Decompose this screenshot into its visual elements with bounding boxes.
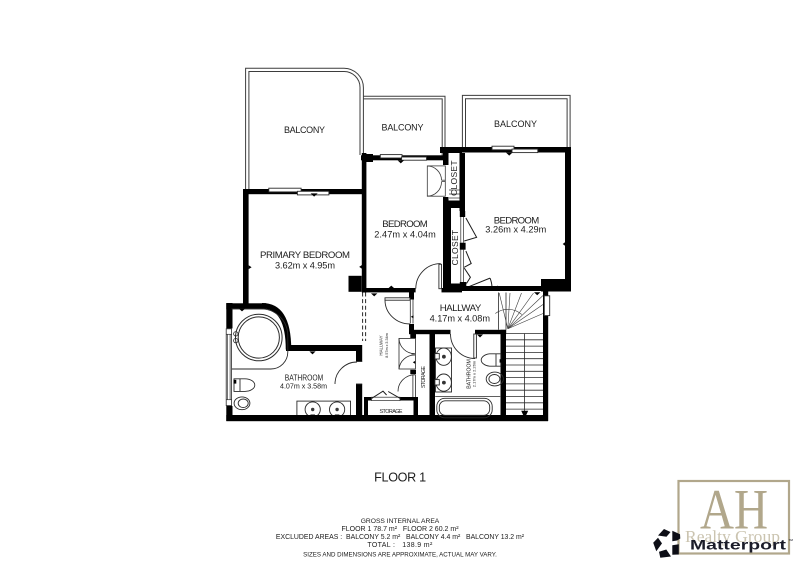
svg-text:Matterport: Matterport bbox=[690, 537, 786, 553]
svg-text:GROSS INTERNAL AREA: GROSS INTERNAL AREA bbox=[361, 518, 440, 525]
svg-text:3.26m x 4.29m: 3.26m x 4.29m bbox=[485, 224, 546, 234]
svg-text:2.47m x 4.04m: 2.47m x 4.04m bbox=[374, 230, 436, 240]
svg-text:STORAGE: STORAGE bbox=[380, 409, 403, 415]
svg-text:FLOOR 1: FLOOR 1 bbox=[374, 471, 426, 485]
svg-text:HALLWAY: HALLWAY bbox=[378, 335, 383, 355]
svg-text:CLOSET: CLOSET bbox=[450, 230, 460, 266]
svg-text:TOTAL : 138.9 m²: TOTAL : 138.9 m² bbox=[367, 542, 433, 549]
svg-text:BALCONY: BALCONY bbox=[284, 125, 325, 135]
svg-text:BEDROOM: BEDROOM bbox=[382, 219, 428, 230]
svg-text:BALCONY: BALCONY bbox=[382, 122, 424, 132]
svg-text:4.17m x 4.08m: 4.17m x 4.08m bbox=[430, 313, 491, 323]
svg-text:2.17m x 2.26m: 2.17m x 2.26m bbox=[472, 360, 477, 387]
svg-text:4.07m x 3.58m: 4.07m x 3.58m bbox=[280, 382, 327, 391]
svg-text:FLOOR 1 78.7 m² FLOOR 2 60.2: FLOOR 1 78.7 m² FLOOR 2 60.2 m² bbox=[341, 526, 459, 533]
svg-text:SIZES AND DIMENSIONS ARE APPRO: SIZES AND DIMENSIONS ARE APPROXIMATE, AC… bbox=[303, 551, 497, 558]
svg-text:BALCONY: BALCONY bbox=[494, 119, 537, 129]
svg-text:STORAGE: STORAGE bbox=[421, 365, 427, 388]
svg-text:CLOSET: CLOSET bbox=[449, 160, 459, 196]
svg-text:™: ™ bbox=[788, 539, 793, 545]
svg-text:8.57m x 3.34m: 8.57m x 3.34m bbox=[385, 333, 389, 357]
svg-text:3.62m x 4.95m: 3.62m x 4.95m bbox=[275, 261, 335, 271]
svg-text:EXCLUDED AREAS : BALCONY 5.2: EXCLUDED AREAS : BALCONY 5.2 m² BALCONY … bbox=[276, 534, 525, 541]
